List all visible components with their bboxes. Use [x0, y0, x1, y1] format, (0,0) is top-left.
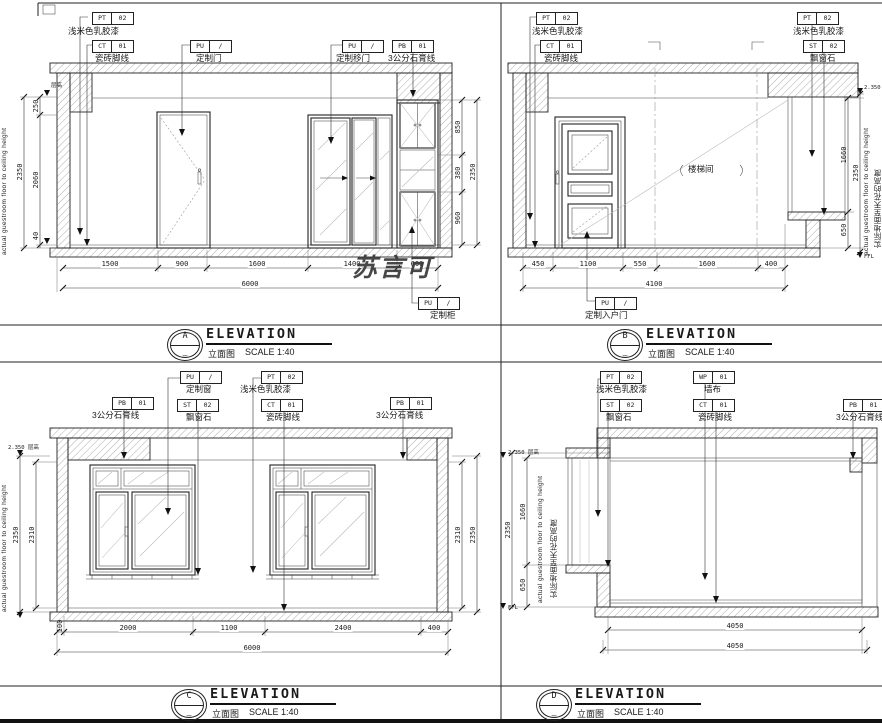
- tag-code: PU: [181, 372, 200, 383]
- view-title: ELEVATION: [210, 686, 336, 705]
- dim-label: 450: [531, 260, 546, 268]
- tag-label: 飘窗石: [810, 52, 836, 64]
- tag-num: 01: [713, 400, 734, 411]
- view-sub: —: [536, 711, 572, 720]
- dim-label: 2060: [32, 172, 40, 189]
- view-bubble-b: B —: [607, 329, 643, 361]
- tag-num: 02: [620, 400, 641, 411]
- bubble-divider: [611, 345, 639, 346]
- tag-label: 定制门: [196, 52, 222, 64]
- side-note: actual guestroom floor to ceiling height: [1, 95, 8, 255]
- watermark: 苏言可: [352, 248, 433, 284]
- level-mark: 层高: [51, 81, 62, 89]
- dim-label: 550: [633, 260, 648, 268]
- dim-label: 900: [175, 260, 190, 268]
- tag-label: 飘窗石: [186, 411, 212, 423]
- tag-num: 01: [410, 398, 431, 409]
- tag-label: 定制移门: [336, 52, 370, 64]
- dim-label: 1660: [519, 504, 527, 521]
- level-mark: 2.350 层高: [8, 443, 39, 451]
- tag-code: CT: [262, 400, 281, 411]
- view-bubble-c: C —: [171, 689, 207, 721]
- view-scale: SCALE 1:40: [249, 707, 299, 720]
- tag-code: PB: [113, 398, 132, 409]
- view-subtitle-cn: 立面图: [577, 707, 604, 720]
- tag-num: 01: [281, 400, 302, 411]
- dim-label: 2000: [119, 624, 138, 632]
- tag-code: PB: [844, 400, 863, 411]
- level-mark: 2.350 层高: [508, 448, 539, 456]
- dim-label: 1600: [698, 260, 717, 268]
- tag-code: PB: [393, 41, 412, 52]
- tag-label: 浅米色乳胶漆: [240, 383, 291, 395]
- tag-num: 02: [281, 372, 302, 383]
- dim-label: 650: [840, 224, 848, 237]
- material-tag-paint: PT 02: [536, 12, 578, 25]
- tag-label: 3公分石膏线: [388, 52, 435, 64]
- tag-code: WP: [694, 372, 713, 383]
- dim-label: 400: [764, 260, 779, 268]
- tag-code: ST: [178, 400, 197, 411]
- tag-num: /: [438, 298, 459, 309]
- tag-code: PT: [93, 13, 112, 24]
- elevation-d-walls: [566, 428, 878, 617]
- view-scale: SCALE 1:40: [245, 347, 295, 360]
- view-title: ELEVATION: [575, 686, 701, 705]
- view-title: ELEVATION: [206, 326, 332, 345]
- dim-label: 2310: [28, 527, 36, 544]
- tag-num: /: [362, 41, 383, 52]
- tag-code: PU: [343, 41, 362, 52]
- view-bubble-d: D —: [536, 689, 572, 721]
- tag-code: PT: [601, 372, 620, 383]
- tag-code: PT: [262, 372, 281, 383]
- tag-label: 浅米色乳胶漆: [793, 25, 844, 37]
- tag-num: 02: [112, 13, 133, 24]
- elevation-b-walls: [508, 63, 858, 257]
- tag-code: CT: [694, 400, 713, 411]
- dim-label: 2350: [16, 164, 24, 181]
- dim-label: 2350: [852, 165, 860, 182]
- tag-num: 01: [112, 41, 133, 52]
- dim-label: 1100: [220, 624, 239, 632]
- dim-label: 2350: [12, 527, 20, 544]
- tag-label: 瓷砖脚线: [266, 411, 300, 423]
- tag-num: 02: [620, 372, 641, 383]
- tag-num: 02: [823, 41, 844, 52]
- tag-num: /: [200, 372, 221, 383]
- dim-label: 4050: [726, 642, 745, 650]
- view-letter: A: [167, 331, 203, 341]
- dim-label: 100: [56, 620, 64, 633]
- side-note: actual guestroom floor to ceiling height: [863, 100, 870, 255]
- tag-num: /: [210, 41, 231, 52]
- dim-label: 2400: [334, 624, 353, 632]
- level-mark: 2.350 层高: [864, 83, 882, 91]
- tag-code: PU: [191, 41, 210, 52]
- side-note: 实际地面至天花的高度: [872, 108, 882, 248]
- dim-label: 2310: [454, 527, 462, 544]
- dim-label: 850: [454, 121, 462, 134]
- dim-label: 6000: [241, 280, 260, 288]
- tag-label: 飘窗石: [606, 411, 632, 423]
- tag-num: 01: [713, 372, 734, 383]
- dim-label: 2350: [469, 164, 477, 181]
- view-subtitle-cn: 立面图: [648, 347, 675, 360]
- tag-num: 02: [817, 13, 838, 24]
- tag-label: 瓷砖脚线: [698, 411, 732, 423]
- tag-label: 定制入户门: [585, 309, 628, 321]
- tag-code: PU: [596, 298, 615, 309]
- tag-code: CT: [93, 41, 112, 52]
- view-subtitle: 立面图 SCALE 1:40: [648, 347, 735, 360]
- tag-num: 01: [560, 41, 581, 52]
- dim-label: 4050: [726, 622, 745, 630]
- view-subtitle-cn: 立面图: [208, 347, 235, 360]
- view-title: ELEVATION: [646, 326, 772, 345]
- tag-label: 定制柜: [430, 309, 456, 321]
- dim-label: 1500: [101, 260, 120, 268]
- tag-code: PB: [391, 398, 410, 409]
- view-subtitle-cn: 立面图: [212, 707, 239, 720]
- view-subtitle: 立面图 SCALE 1:40: [577, 707, 664, 720]
- view-letter: C: [171, 691, 207, 701]
- bubble-divider: [171, 345, 199, 346]
- tag-num: /: [615, 298, 636, 309]
- tag-label: 3公分石膏线: [836, 411, 882, 423]
- dim-label: 1600: [248, 260, 267, 268]
- tag-code: ST: [601, 400, 620, 411]
- view-scale: SCALE 1:40: [685, 347, 735, 360]
- tag-code: CT: [541, 41, 560, 52]
- dim-label: 4100: [645, 280, 664, 288]
- cad-linework: [0, 0, 882, 723]
- centerlines: [557, 42, 788, 252]
- tag-num: 02: [197, 400, 218, 411]
- view-sub: —: [167, 351, 203, 360]
- tag-label: 3公分石膏线: [376, 409, 423, 421]
- tag-num: 01: [412, 41, 433, 52]
- level-mark: FFL: [508, 605, 518, 611]
- dim-label: 380: [454, 167, 462, 180]
- tag-code: ST: [804, 41, 823, 52]
- material-tag-paint: PT 02: [797, 12, 839, 25]
- view-subtitle: 立面图 SCALE 1:40: [212, 707, 299, 720]
- side-note: 实际地面至天花的高度: [548, 470, 559, 598]
- view-letter: D: [536, 691, 572, 701]
- side-note: actual guestroom floor to ceiling height: [537, 463, 544, 603]
- material-tag-paint: PT 02: [92, 12, 134, 25]
- room-note: 楼梯间: [688, 163, 714, 175]
- dim-label: 1660: [840, 147, 848, 164]
- view-sub: —: [607, 351, 643, 360]
- dim-label: 2350: [504, 522, 512, 539]
- dim-label: 960: [454, 212, 462, 225]
- dim-label: 1100: [579, 260, 598, 268]
- cabinet: [397, 100, 438, 248]
- entry-door: [555, 117, 625, 248]
- tag-num: 02: [556, 13, 577, 24]
- elevation-c-walls: [50, 428, 452, 621]
- side-note: actual guestroom floor to ceiling height: [1, 462, 8, 612]
- elevation-c-dimensions: [16, 450, 481, 656]
- tag-label: 浅米色乳胶漆: [68, 25, 119, 37]
- view-subtitle: 立面图 SCALE 1:40: [208, 347, 295, 360]
- tag-label: 墙布: [704, 383, 721, 395]
- bubble-divider: [175, 705, 203, 706]
- tag-num: 01: [132, 398, 153, 409]
- tag-label: 定制窗: [186, 383, 212, 395]
- dim-label: 250: [32, 100, 40, 113]
- dim-label: 40: [32, 232, 40, 240]
- tag-num: 01: [863, 400, 882, 411]
- dim-label: 400: [427, 624, 442, 632]
- view-letter: B: [607, 331, 643, 341]
- tag-code: PT: [798, 13, 817, 24]
- tag-label: 3公分石膏线: [92, 409, 139, 421]
- window-2: [266, 465, 379, 579]
- view-scale: SCALE 1:40: [614, 707, 664, 720]
- tag-label: 浅米色乳胶漆: [596, 383, 647, 395]
- tag-code: PU: [419, 298, 438, 309]
- dim-label: 2350: [469, 527, 477, 544]
- bubble-divider: [540, 705, 568, 706]
- dim-label: 6000: [243, 644, 262, 652]
- drawing-sheet: PT 02 浅米色乳胶漆 CT 01 瓷砖脚线 PU / 定制门 PU / 定制…: [0, 0, 882, 723]
- view-sub: —: [171, 711, 207, 720]
- tag-label: 浅米色乳胶漆: [532, 25, 583, 37]
- sliding-door: [308, 115, 392, 248]
- tag-label: 瓷砖脚线: [544, 52, 578, 64]
- dim-label: 650: [519, 579, 527, 592]
- tag-label: 瓷砖脚线: [95, 52, 129, 64]
- window-1: [86, 465, 199, 579]
- elevation-b-dimensions: [520, 88, 864, 292]
- view-bubble-a: A —: [167, 329, 203, 361]
- elevation-c-leaders: [121, 378, 406, 611]
- tag-code: PT: [537, 13, 556, 24]
